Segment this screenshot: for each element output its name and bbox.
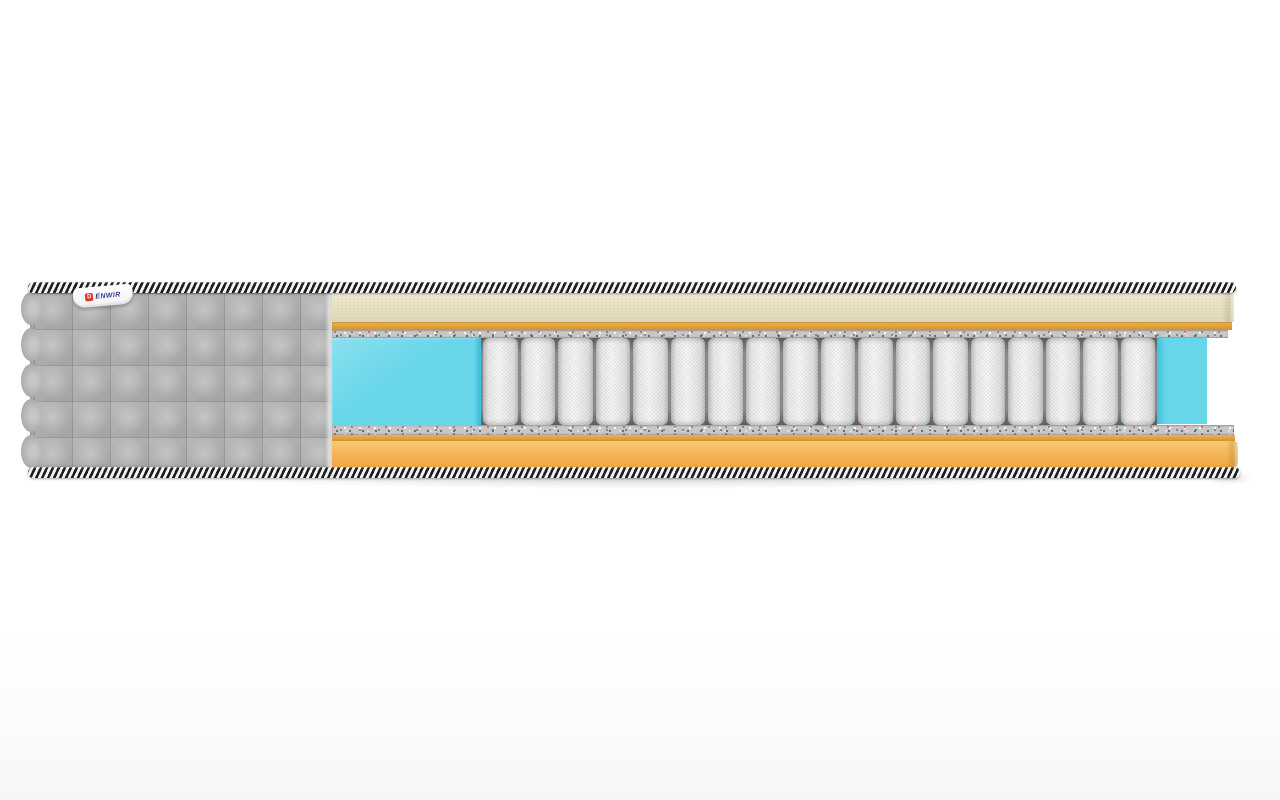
- cover-scallop-bump: [21, 399, 41, 432]
- cover-scallop-bump: [21, 435, 41, 468]
- bottom-felt-pad-layer: [332, 425, 1234, 435]
- cover-scallop-bump: [21, 328, 41, 361]
- quilted-top-cover-layer: [332, 292, 1234, 322]
- pocket-spring: [633, 338, 668, 425]
- pocket-spring: [1046, 338, 1081, 425]
- brand-logo-icon: D: [85, 293, 94, 302]
- pocket-spring: [1121, 338, 1156, 425]
- top-foam-line-layer: [332, 322, 1232, 330]
- brand-logo-text: ENWIR: [95, 291, 121, 300]
- pocket-spring: [746, 338, 781, 425]
- cover-cut-edge: [325, 288, 332, 471]
- pocket-spring: [708, 338, 743, 425]
- base-foam-end-face: [1226, 441, 1238, 467]
- pocket-spring: [896, 338, 931, 425]
- foam-block-layer: [332, 337, 481, 426]
- top-cover-end-face: [1222, 292, 1234, 322]
- bottom-foam-line-layer: [332, 435, 1235, 441]
- pocket-spring: [1008, 338, 1043, 425]
- pocket-spring: [821, 338, 856, 425]
- pocket-spring: [558, 338, 593, 425]
- cover-scallop-bump: [21, 292, 41, 325]
- top-felt-pad-layer: [332, 330, 1228, 338]
- pocket-spring: [783, 338, 818, 425]
- pocket-spring: [858, 338, 893, 425]
- bottom-edge-piping: [28, 467, 1240, 478]
- cover-edge-scallops: [21, 292, 43, 468]
- edge-support-foam: [1157, 338, 1207, 424]
- cover-scallop-bump: [21, 364, 41, 397]
- pocket-spring: [933, 338, 968, 425]
- pocket-spring: [521, 338, 556, 425]
- mattress-product-image: D ENWIR: [0, 0, 1280, 800]
- base-foam-layer: [332, 441, 1238, 467]
- pocket-spring: [971, 338, 1006, 425]
- pocket-spring: [1083, 338, 1118, 425]
- pocket-spring-unit: [481, 338, 1157, 425]
- top-edge-piping: [28, 282, 1236, 293]
- foam-block-side-face: [474, 337, 481, 426]
- pocket-spring: [483, 338, 518, 425]
- outer-quilted-cover: [30, 288, 332, 471]
- pocket-spring: [596, 338, 631, 425]
- pocket-spring: [671, 338, 706, 425]
